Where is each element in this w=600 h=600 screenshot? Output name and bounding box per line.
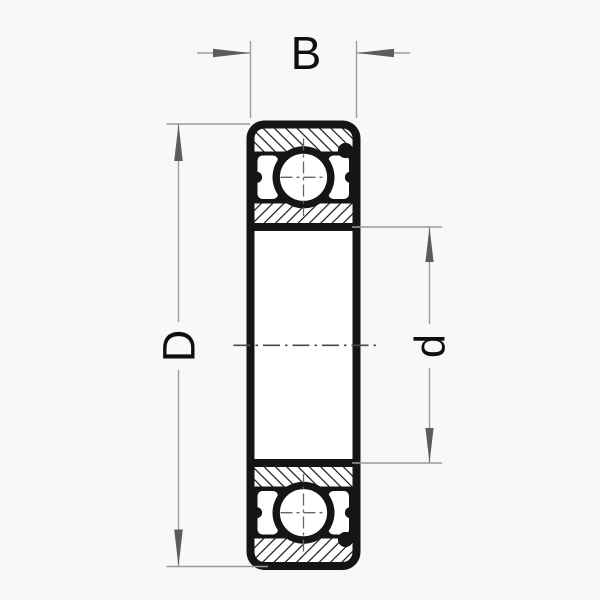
dim-label-bore-diameter: d	[407, 334, 455, 358]
bearing-diagram: B D d	[0, 0, 600, 600]
bearing-drawing-canvas: B D d	[0, 0, 600, 600]
bearing-body	[234, 125, 377, 567]
dim-label-width: B	[291, 27, 322, 79]
bearing-section-top	[251, 128, 356, 226]
bearing-section-bottom	[251, 464, 356, 562]
dim-label-outer-diameter: D	[154, 330, 205, 363]
